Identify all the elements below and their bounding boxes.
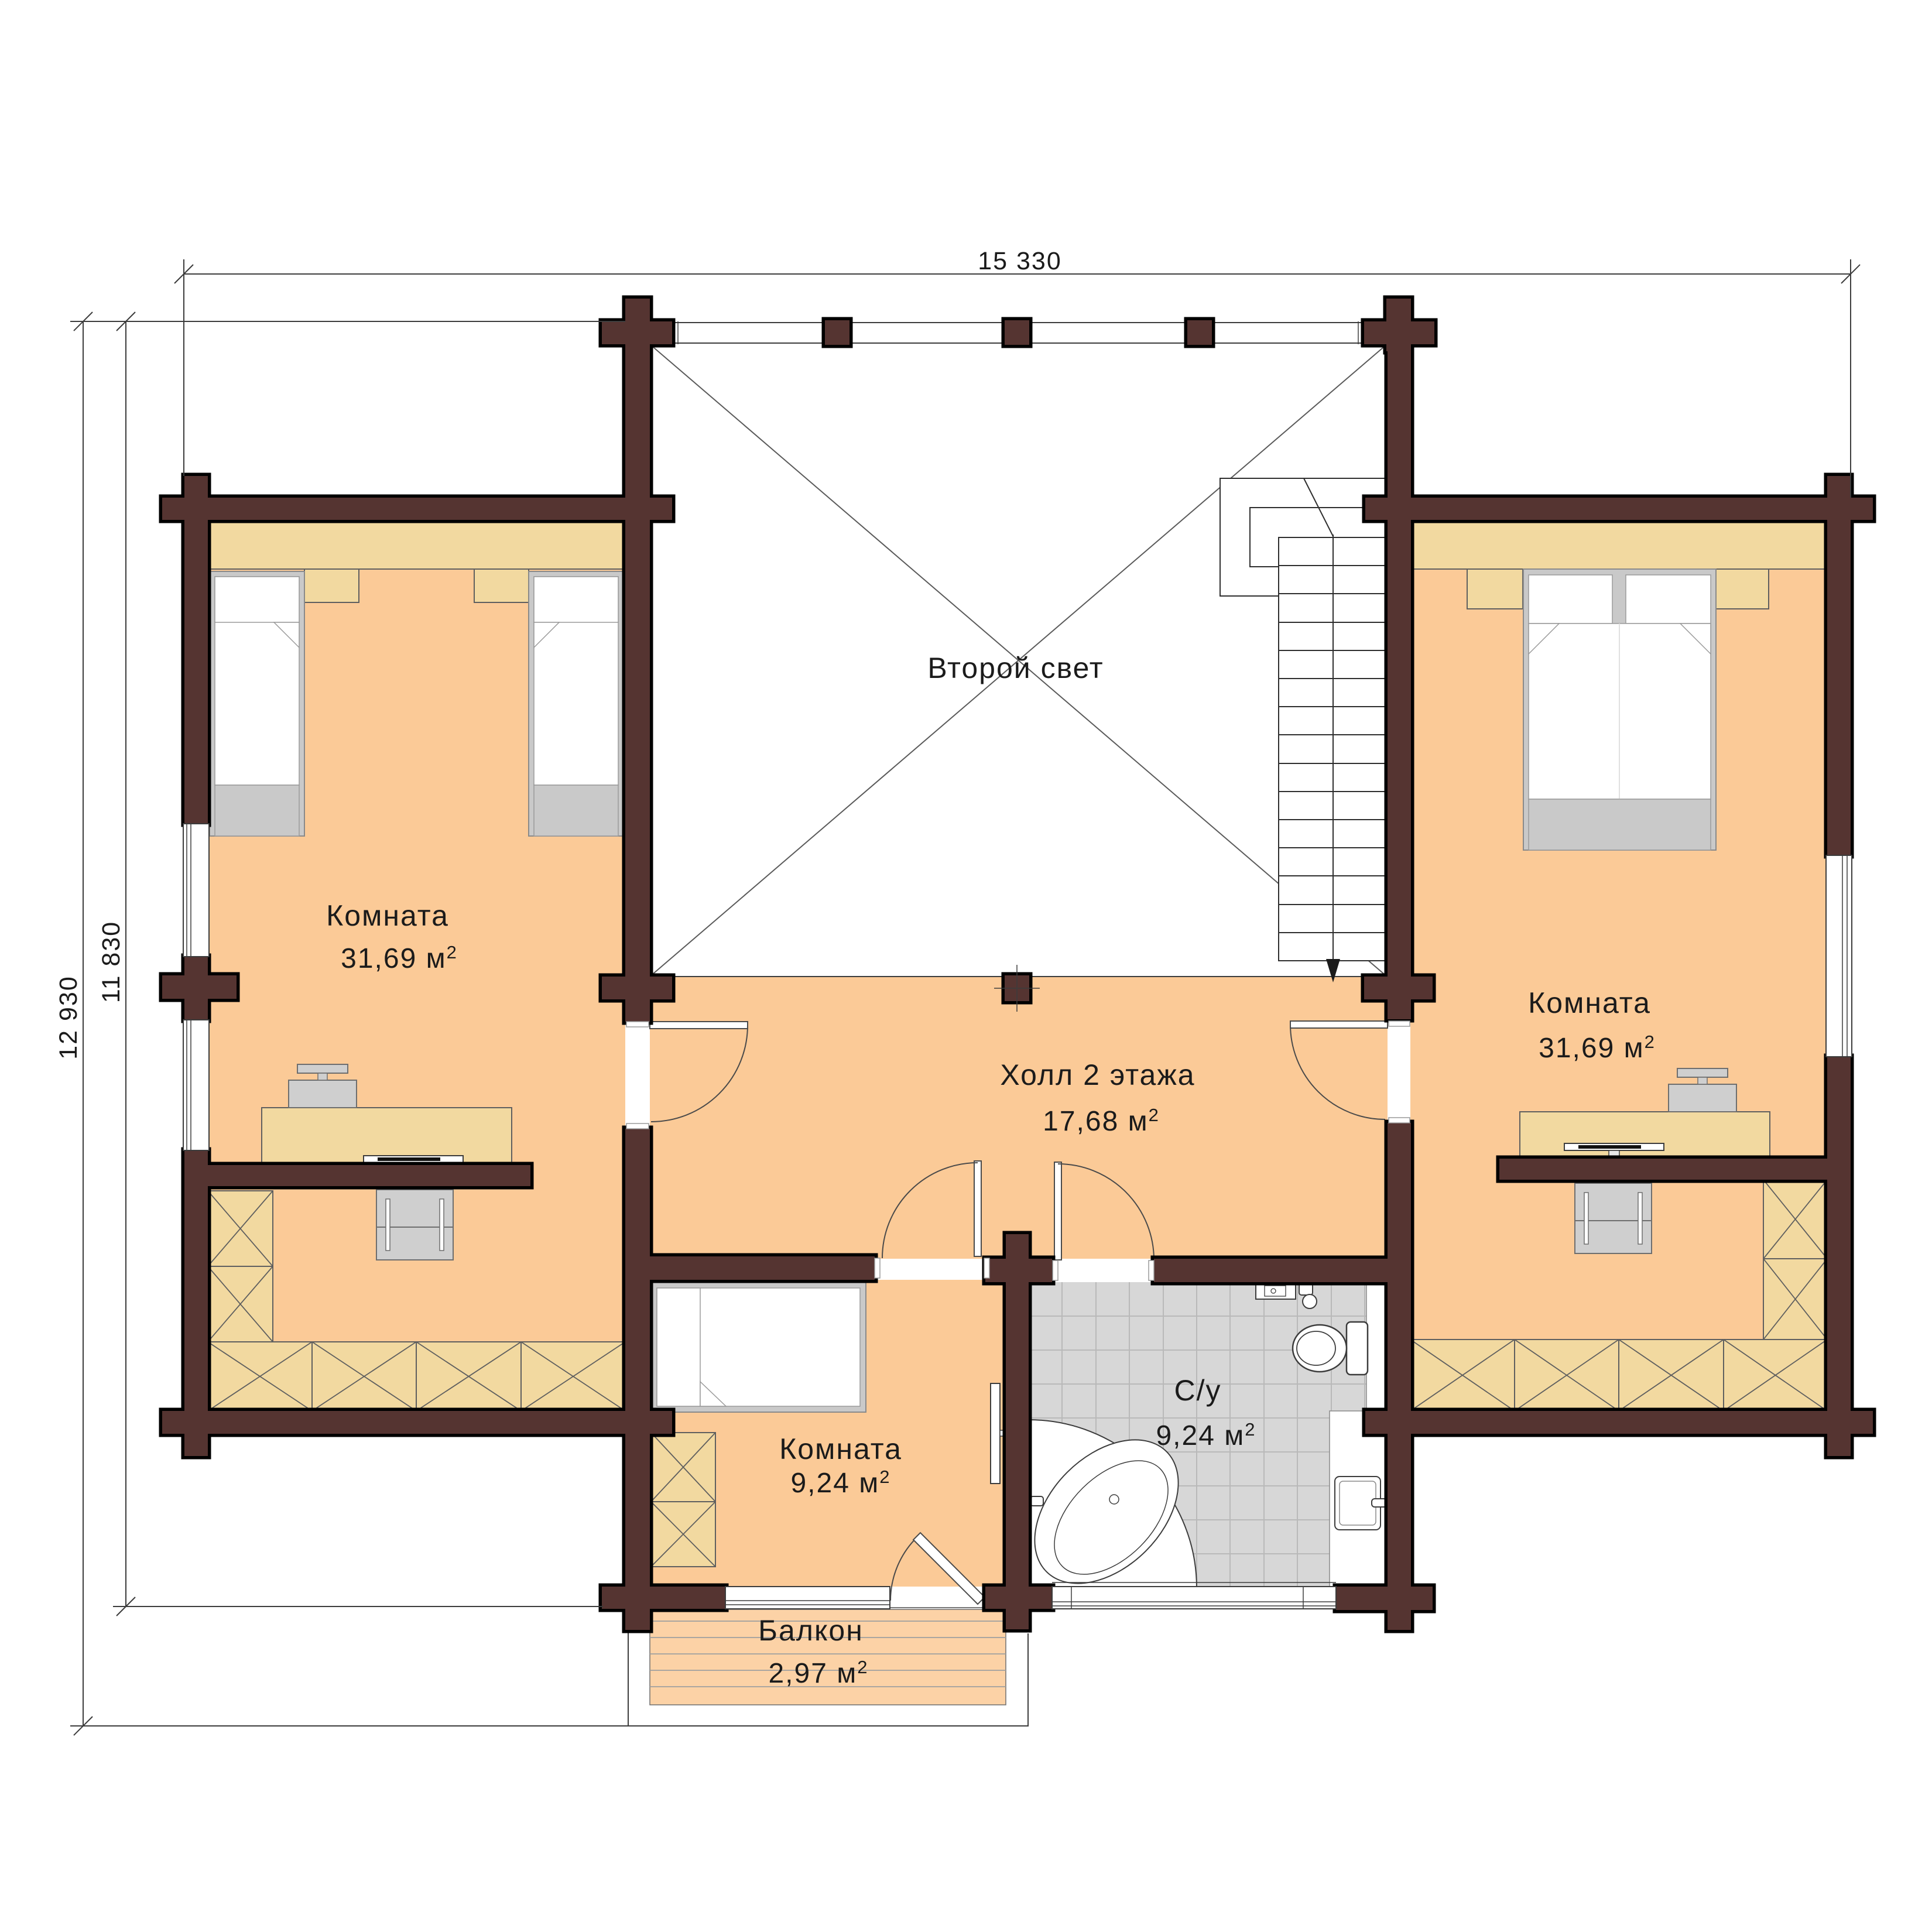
- svg-text:Комната: Комната: [1528, 986, 1651, 1019]
- svg-text:Второй свет: Второй свет: [927, 652, 1104, 684]
- svg-text:31,69 м2: 31,69 м2: [1539, 1032, 1656, 1064]
- svg-text:С/у: С/у: [1174, 1374, 1222, 1407]
- svg-text:9,24 м2: 9,24 м2: [790, 1467, 890, 1499]
- svg-text:9,24 м2: 9,24 м2: [1156, 1419, 1256, 1451]
- svg-text:12 930: 12 930: [54, 975, 83, 1060]
- svg-text:11 830: 11 830: [97, 921, 125, 1003]
- svg-text:31,69 м2: 31,69 м2: [341, 942, 458, 974]
- svg-text:Холл 2 этажа: Холл 2 этажа: [1000, 1059, 1195, 1091]
- svg-text:Комната: Комната: [326, 899, 449, 932]
- svg-text:Комната: Комната: [779, 1433, 902, 1465]
- svg-text:17,68 м2: 17,68 м2: [1043, 1105, 1160, 1137]
- svg-text:2,97 м2: 2,97 м2: [768, 1657, 868, 1689]
- svg-text:15 330: 15 330: [978, 247, 1062, 275]
- svg-text:Балкон: Балкон: [758, 1614, 864, 1647]
